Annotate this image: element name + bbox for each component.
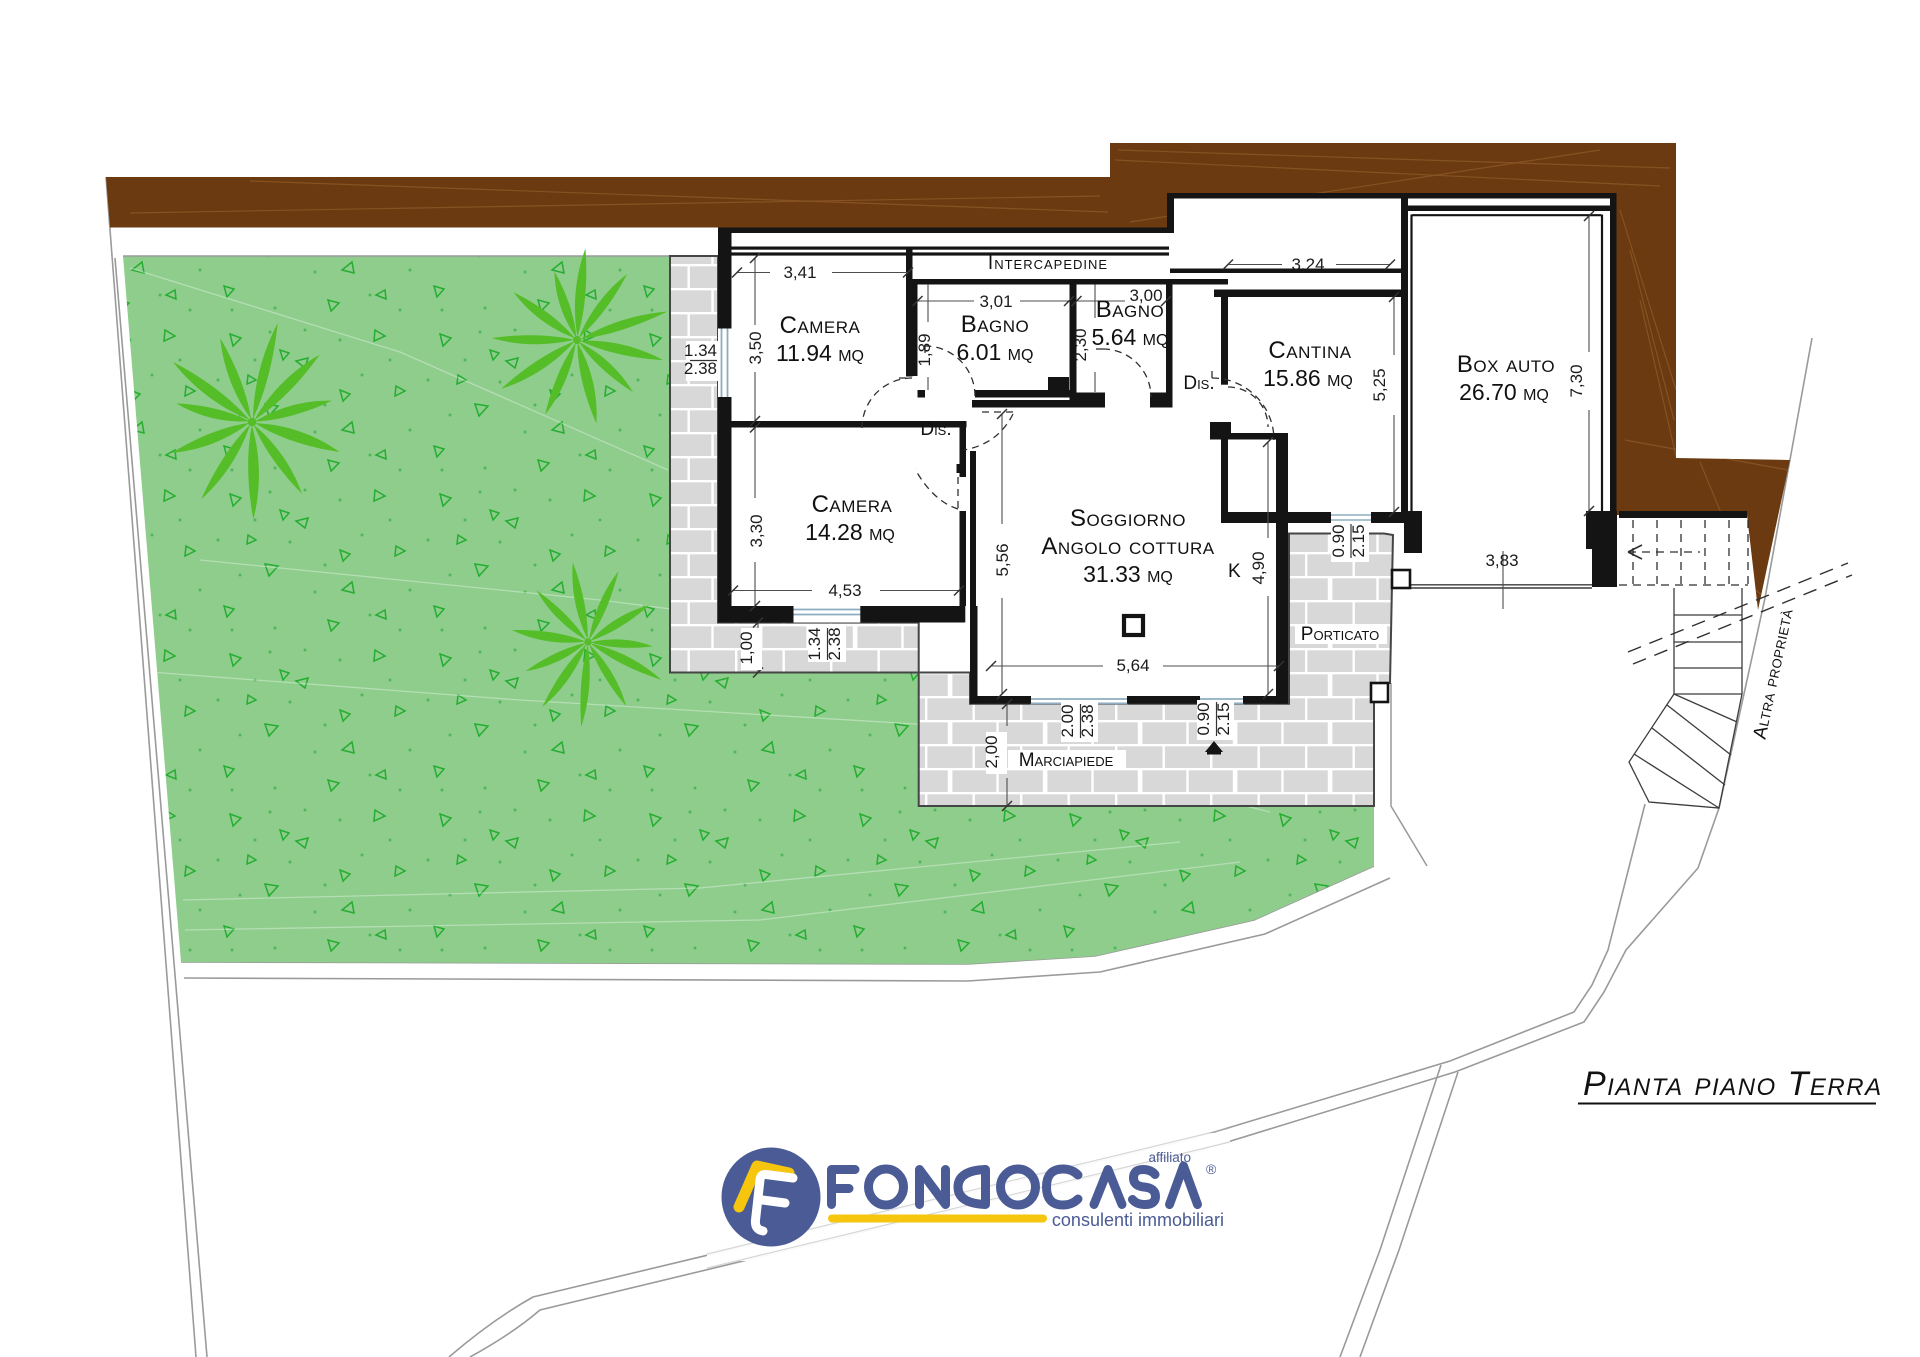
svg-text:1,89: 1,89 — [915, 333, 934, 366]
svg-text:2.38: 2.38 — [1078, 704, 1097, 737]
svg-text:0.90: 0.90 — [1329, 524, 1348, 557]
svg-text:2.15: 2.15 — [1349, 524, 1368, 557]
svg-text:0.90: 0.90 — [1194, 702, 1213, 735]
svg-text:5,64: 5,64 — [1116, 656, 1149, 675]
svg-text:2,00: 2,00 — [982, 735, 1001, 768]
svg-text:Soggiorno: Soggiorno — [1070, 505, 1186, 532]
svg-text:3,24: 3,24 — [1291, 255, 1324, 274]
svg-text:7,30: 7,30 — [1567, 364, 1586, 397]
svg-text:2.38: 2.38 — [684, 359, 717, 378]
svg-text:2.00: 2.00 — [1058, 704, 1077, 737]
svg-text:14.28 mq: 14.28 mq — [805, 519, 895, 545]
svg-text:Bagno: Bagno — [961, 311, 1030, 338]
svg-text:3,01: 3,01 — [979, 292, 1012, 311]
svg-text:3,50: 3,50 — [746, 331, 765, 364]
svg-text:consulenti immobiliari: consulenti immobiliari — [1052, 1210, 1224, 1230]
svg-text:4,90: 4,90 — [1249, 551, 1268, 584]
svg-text:5,56: 5,56 — [993, 543, 1012, 576]
svg-text:Dis.: Dis. — [920, 419, 951, 440]
svg-text:5,25: 5,25 — [1370, 368, 1389, 401]
svg-text:Intercapedine: Intercapedine — [988, 253, 1108, 274]
svg-text:Box auto: Box auto — [1457, 351, 1555, 378]
svg-text:1,00: 1,00 — [737, 631, 756, 664]
svg-text:K: K — [1228, 561, 1241, 582]
svg-text:2.38: 2.38 — [825, 627, 844, 660]
svg-text:affiliato: affiliato — [1148, 1150, 1191, 1165]
svg-text:31.33 mq: 31.33 mq — [1083, 561, 1173, 587]
svg-text:1.34: 1.34 — [684, 341, 717, 360]
svg-text:Camera: Camera — [812, 491, 893, 518]
svg-text:Bagno: Bagno — [1096, 296, 1165, 323]
svg-text:1.34: 1.34 — [805, 627, 824, 660]
svg-text:6.01 mq: 6.01 mq — [957, 339, 1034, 365]
svg-text:3,41: 3,41 — [783, 263, 816, 282]
svg-text:2.15: 2.15 — [1214, 702, 1233, 735]
svg-text:Pianta piano Terra: Pianta piano Terra — [1583, 1065, 1883, 1103]
svg-text:Dis.: Dis. — [1183, 373, 1214, 394]
svg-text:4,53: 4,53 — [828, 581, 861, 600]
svg-text:15.86 mq: 15.86 mq — [1263, 365, 1353, 391]
svg-text:5.64 mq: 5.64 mq — [1092, 324, 1169, 350]
svg-text:Marciapiede: Marciapiede — [1019, 750, 1114, 771]
svg-text:2,30: 2,30 — [1071, 328, 1090, 361]
svg-text:Cantina: Cantina — [1268, 337, 1351, 364]
svg-text:3,83: 3,83 — [1485, 551, 1518, 570]
svg-text:3,30: 3,30 — [747, 514, 766, 547]
svg-text:11.94 mq: 11.94 mq — [776, 340, 864, 366]
svg-text:Porticato: Porticato — [1301, 624, 1379, 645]
svg-text:Camera: Camera — [780, 312, 861, 339]
svg-text:Angolo cottura: Angolo cottura — [1041, 533, 1214, 560]
svg-text:®: ® — [1206, 1161, 1217, 1177]
svg-text:26.70 mq: 26.70 mq — [1459, 379, 1549, 405]
